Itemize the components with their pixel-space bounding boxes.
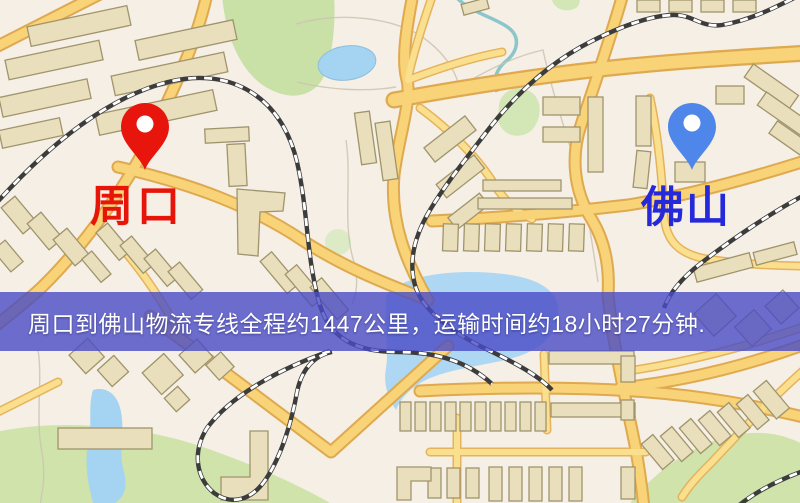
red-location-pin-icon[interactable] (121, 103, 169, 170)
destination-city-label: 佛山 (641, 173, 731, 235)
origin-city-label: 周口 (90, 172, 184, 234)
destination-pin[interactable] (668, 103, 716, 170)
red-pin-center-dot (137, 116, 154, 133)
map-background (0, 0, 800, 503)
route-info-text: 周口到佛山物流专线全程约1447公里，运输时间约18小时27分钟. (28, 305, 705, 339)
logistics-route-map: 周口 佛山 周口到佛山物流专线全程约1447公里，运输时间约18小时27分钟. (0, 0, 800, 503)
route-info-banner: 周口到佛山物流专线全程约1447公里，运输时间约18小时27分钟. (0, 292, 800, 351)
blue-location-pin-icon[interactable] (668, 103, 716, 170)
blue-pin-center-dot (684, 115, 701, 132)
origin-pin[interactable] (121, 103, 169, 170)
